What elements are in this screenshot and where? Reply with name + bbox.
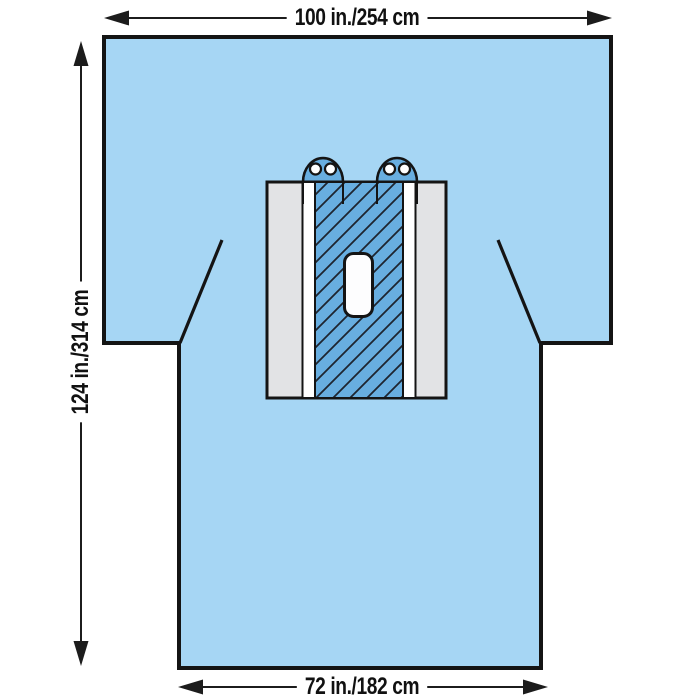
drape-diagram [0,0,700,700]
arrowhead-left-icon [178,680,203,695]
arrowhead-down-icon [74,641,89,666]
dimension-label-left-height: 124 in./314 cm [68,282,94,423]
arrowhead-right-icon [587,11,612,26]
arrowhead-right-icon [523,680,548,695]
diagram-canvas: 100 in./254 cm 124 in./314 cm 72 in./182… [0,0,700,700]
tube-holder-eyelet [310,164,321,175]
side-strip-left [303,182,316,398]
dimension-label-top-width: 100 in./254 cm [287,5,428,31]
arrowhead-up-icon [74,41,89,66]
arrowhead-left-icon [104,11,129,26]
tube-holder-eyelet [399,164,410,175]
side-strip-right [403,182,416,398]
fenestration [345,254,373,317]
dimension-label-bottom-width: 72 in./182 cm [297,674,427,700]
tube-holder-eyelet [325,164,336,175]
tube-holder-eyelet [384,164,395,175]
